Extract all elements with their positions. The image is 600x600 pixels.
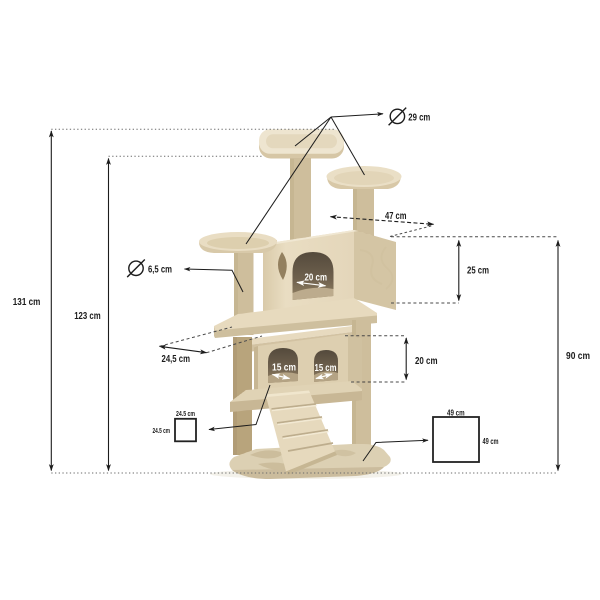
svg-text:47 cm: 47 cm	[385, 210, 407, 222]
svg-text:123 cm: 123 cm	[74, 310, 101, 322]
svg-text:29 cm: 29 cm	[408, 111, 430, 123]
svg-text:20 cm: 20 cm	[415, 355, 438, 367]
svg-text:24.5 cm: 24.5 cm	[153, 428, 171, 435]
svg-text:15 cm: 15 cm	[315, 362, 337, 374]
svg-text:20 cm: 20 cm	[305, 271, 328, 283]
svg-text:90 cm: 90 cm	[566, 350, 590, 362]
svg-text:24.5 cm: 24.5 cm	[176, 411, 195, 418]
svg-text:25 cm: 25 cm	[467, 264, 489, 276]
svg-text:49 cm: 49 cm	[483, 437, 499, 446]
svg-text:49 cm: 49 cm	[447, 409, 465, 418]
svg-text:131 cm: 131 cm	[13, 296, 41, 308]
svg-text:15 cm: 15 cm	[272, 361, 296, 373]
svg-text:6,5 cm: 6,5 cm	[148, 264, 172, 276]
svg-text:24,5 cm: 24,5 cm	[162, 353, 191, 365]
